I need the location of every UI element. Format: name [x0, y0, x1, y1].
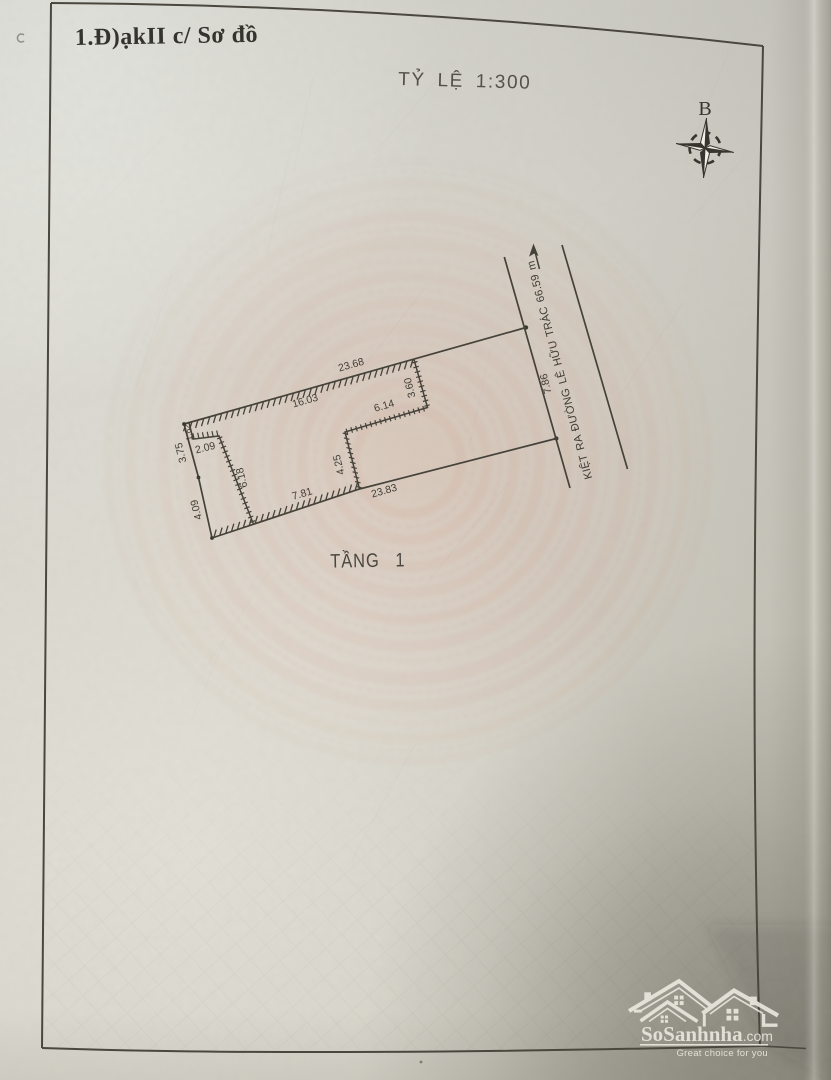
svg-text:TẦNG 1: TẦNG 1	[330, 548, 406, 572]
svg-text:B: B	[698, 98, 711, 120]
svg-text:Great choice for you: Great choice for you	[676, 1048, 768, 1059]
svg-text:TỶ LỆ 1:300: TỶ LỆ 1:300	[398, 68, 532, 94]
svg-text:1.Đ)ạkII c/ Sơ đồ: 1.Đ)ạkII c/ Sơ đồ	[75, 22, 259, 51]
